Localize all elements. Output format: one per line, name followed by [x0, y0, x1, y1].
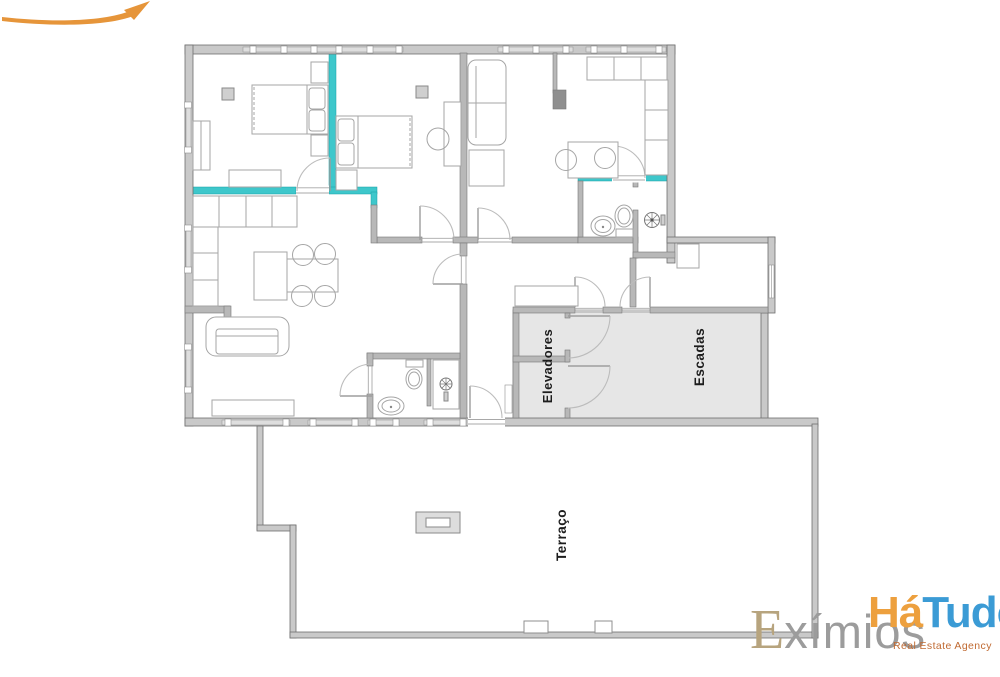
- kitchen-furniture: [468, 57, 668, 186]
- agency-name-first: Há: [868, 588, 922, 637]
- terrace-details: [416, 512, 612, 633]
- hall-sideboard: [515, 286, 578, 306]
- agency-logo: HáTudo: [868, 588, 1000, 638]
- bedroom1-furniture: [193, 62, 328, 187]
- logo-swoosh-icon: [0, 0, 152, 30]
- label-stairs: Escadas: [692, 328, 707, 386]
- watermark-initial: E: [750, 599, 784, 661]
- upper-bathroom-fixtures: [591, 205, 665, 237]
- landing-cabinet: [677, 244, 699, 268]
- label-terrace: Terraço: [554, 509, 569, 561]
- lower-bathroom-fixtures: [378, 360, 459, 415]
- agency-tagline: Real Estate Agency: [893, 640, 992, 652]
- bedroom2-furniture: [336, 86, 461, 190]
- living-room-furniture: [193, 196, 338, 416]
- floor-plan: Elevadores Escadas Terraço: [0, 0, 1000, 677]
- shower-head-icon: [645, 213, 666, 228]
- shower-head-icon: [440, 378, 452, 401]
- label-elevators: Elevadores: [540, 329, 555, 403]
- floorplan-page: Elevadores Escadas Terraço Exímios HáTud…: [0, 0, 1000, 677]
- agency-name-second: Tudo: [922, 588, 1000, 637]
